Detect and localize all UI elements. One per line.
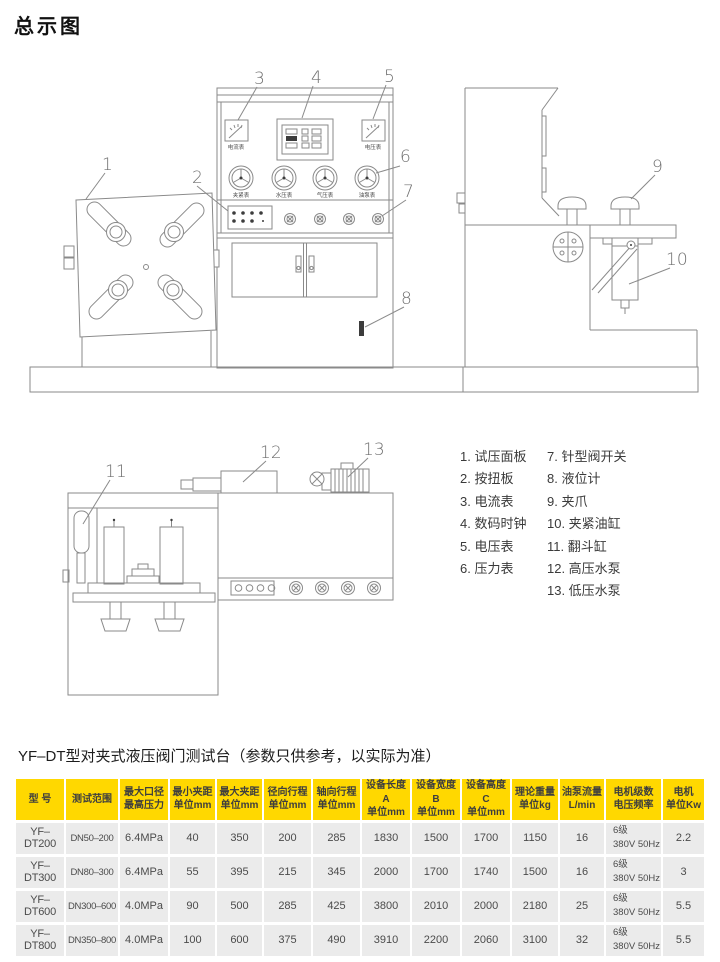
- digital-clock: [277, 119, 333, 160]
- pressure-gauges: 夹紧表 水压表 气压表 油泵表: [229, 166, 379, 199]
- spec-cell: 3: [663, 857, 704, 888]
- spec-cell: 1830: [362, 823, 410, 854]
- spec-cell: 16: [560, 823, 604, 854]
- spec-row: YF–DT800 DN350–800 4.0MPa 100 600 375 49…: [16, 925, 704, 956]
- legend-column-right: 7. 针型阀开关 8. 液位计 9. 夹爪 10. 夹紧油缸 11. 翻斗缸 1…: [547, 446, 626, 603]
- clamp-jaws: [558, 197, 639, 225]
- callout-10: 10: [666, 250, 688, 270]
- spec-cell: 6级 380V 50Hz: [606, 857, 661, 888]
- spec-cell: 1150: [512, 823, 558, 854]
- spec-cell: 2000: [462, 891, 510, 922]
- spec-cell: DN300–600: [66, 891, 118, 922]
- button-panel: [228, 206, 272, 229]
- legend-item: 13. 低压水泵: [547, 580, 626, 602]
- spec-cell: 1500: [412, 823, 460, 854]
- spec-col-header: 电机级数 电压频率: [606, 779, 661, 820]
- legend-item: 6. 压力表: [460, 558, 526, 580]
- cabinet-doors: [232, 243, 377, 297]
- spec-cell: YF–DT200: [16, 823, 64, 854]
- spec-cell: 395: [217, 857, 262, 888]
- spec-heading: YF–DT型对夹式液压阀门测试台（参数只供参考，以实际为准）: [18, 745, 441, 766]
- tipping-cylinder: [63, 511, 89, 583]
- spec-cell: 425: [313, 891, 360, 922]
- legend-item: 12. 高压水泵: [547, 558, 626, 580]
- legend-item: 4. 数码时钟: [460, 513, 526, 535]
- spec-cell: 350: [217, 823, 262, 854]
- spec-cell: 2010: [412, 891, 460, 922]
- spec-cell: 3800: [362, 891, 410, 922]
- datasheet-page: 总示图 电流表: [0, 0, 720, 962]
- spec-col-header: 最大夹距 单位mm: [217, 779, 262, 820]
- legend-item: 7. 针型阀开关: [547, 446, 626, 468]
- high-pressure-pump: [181, 471, 277, 493]
- spec-col-header: 设备宽度B 单位mm: [412, 779, 460, 820]
- legend-item: 8. 液位计: [547, 468, 626, 490]
- spec-cell: 2.2: [663, 823, 704, 854]
- callout-5: 5: [384, 67, 395, 87]
- spec-col-header: 最小夹距 单位mm: [170, 779, 215, 820]
- spec-cell: 16: [560, 857, 604, 888]
- spec-cell: 600: [217, 925, 262, 956]
- ammeter-label: 电流表: [228, 143, 245, 151]
- spec-col-header: 最大口径 最高压力: [120, 779, 168, 820]
- interior-cylinders: [73, 519, 215, 631]
- legend-column-left: 1. 试压面板 2. 按扭板 3. 电流表 4. 数码时钟 5. 电压表 6. …: [460, 446, 526, 580]
- voltmeter: 电压表: [362, 120, 385, 151]
- callout-9: 9: [652, 157, 663, 177]
- legend-item: 10. 夹紧油缸: [547, 513, 626, 535]
- spec-cell: 1740: [462, 857, 510, 888]
- spec-cell: 32: [560, 925, 604, 956]
- flange: [553, 232, 583, 262]
- voltmeter-label: 电压表: [365, 143, 382, 151]
- spec-cell: 40: [170, 823, 215, 854]
- spec-cell: DN50–200: [66, 823, 118, 854]
- spec-cell: 2060: [462, 925, 510, 956]
- spec-cell: 215: [264, 857, 311, 888]
- spec-col-header: 测试范围: [66, 779, 118, 820]
- gauge-label-air: 气压表: [317, 191, 334, 199]
- gauge-label-oil: 油泵表: [359, 191, 376, 199]
- spec-col-header: 径向行程 单位mm: [264, 779, 311, 820]
- spec-row: YF–DT300 DN80–300 6.4MPa 55 395 215 345 …: [16, 857, 704, 888]
- callout-1: 1: [102, 155, 113, 175]
- legend-item: 9. 夹爪: [547, 491, 626, 513]
- test-pressure-panel: [64, 193, 219, 367]
- spec-cell: 3100: [512, 925, 558, 956]
- spec-cell: 100: [170, 925, 215, 956]
- spec-cell: DN80–300: [66, 857, 118, 888]
- spec-cell: 5.5: [663, 891, 704, 922]
- spec-cell: 6.4MPa: [120, 823, 168, 854]
- callout-6: 6: [400, 147, 411, 167]
- spec-cell: 285: [264, 891, 311, 922]
- spec-col-header: 设备长度A 单位mm: [362, 779, 410, 820]
- spec-cell: 4.0MPa: [120, 891, 168, 922]
- callout-3: 3: [254, 69, 265, 89]
- spec-cell: 6.4MPa: [120, 857, 168, 888]
- legend-item: 2. 按扭板: [460, 468, 526, 490]
- spec-col-header: 油泵流量 L/min: [560, 779, 604, 820]
- callout-11: 11: [105, 462, 127, 482]
- spec-cell: 1700: [462, 823, 510, 854]
- spec-row: YF–DT600 DN300–600 4.0MPa 90 500 285 425…: [16, 891, 704, 922]
- spec-cell: YF–DT600: [16, 891, 64, 922]
- low-pressure-pump: [310, 463, 369, 492]
- spec-cell: 345: [313, 857, 360, 888]
- gauge-label-clamp: 夹紧表: [233, 191, 250, 199]
- spec-col-header: 理论重量 单位kg: [512, 779, 558, 820]
- spec-cell: 4.0MPa: [120, 925, 168, 956]
- ammeter: 电流表: [225, 120, 248, 151]
- spec-col-header: 设备高度C 单位mm: [462, 779, 510, 820]
- callout-13: 13: [363, 440, 385, 460]
- legend-item: 11. 翻斗缸: [547, 536, 626, 558]
- spec-cell: 3910: [362, 925, 410, 956]
- spec-cell: 5.5: [663, 925, 704, 956]
- needle-valves: [285, 214, 384, 225]
- spec-cell: 1700: [412, 857, 460, 888]
- spec-cell: 6级 380V 50Hz: [606, 823, 661, 854]
- spec-cell: 2200: [412, 925, 460, 956]
- spec-cell: DN350–800: [66, 925, 118, 956]
- spec-cell: 500: [217, 891, 262, 922]
- spec-cell: 2180: [512, 891, 558, 922]
- valve-knobs: [290, 582, 381, 595]
- spec-cell: 285: [313, 823, 360, 854]
- spec-cell: 1500: [512, 857, 558, 888]
- gauge-label-water: 水压表: [276, 191, 293, 199]
- pump-view: 11 12 13: [63, 440, 393, 695]
- spec-table: 型 号 测试范围 最大口径 最高压力 最小夹距 单位mm 最大夹距 单位mm 径…: [14, 776, 706, 959]
- callout-12: 12: [260, 443, 282, 463]
- spec-header-row: 型 号 测试范围 最大口径 最高压力 最小夹距 单位mm 最大夹距 单位mm 径…: [16, 779, 704, 820]
- spec-cell: 375: [264, 925, 311, 956]
- spec-col-header: 轴向行程 单位mm: [313, 779, 360, 820]
- level-gauge: [359, 321, 364, 336]
- spec-cell: YF–DT800: [16, 925, 64, 956]
- legend-item: 3. 电流表: [460, 491, 526, 513]
- spec-cell: 200: [264, 823, 311, 854]
- side-view: 9 10: [457, 88, 698, 392]
- spec-col-header: 型 号: [16, 779, 64, 820]
- spec-col-header: 电机 单位Kw: [663, 779, 704, 820]
- front-view: 电流表: [30, 67, 463, 392]
- callout-7: 7: [403, 182, 414, 202]
- spec-row: YF–DT200 DN50–200 6.4MPa 40 350 200 285 …: [16, 823, 704, 854]
- spec-cell: 25: [560, 891, 604, 922]
- callout-8: 8: [401, 289, 412, 309]
- callout-4: 4: [311, 68, 322, 88]
- spec-cell: YF–DT300: [16, 857, 64, 888]
- clamping-cylinder: [592, 238, 638, 314]
- spec-cell: 6级 380V 50Hz: [606, 891, 661, 922]
- spec-cell: 90: [170, 891, 215, 922]
- spec-cell: 490: [313, 925, 360, 956]
- legend-item: 5. 电压表: [460, 536, 526, 558]
- callout-2: 2: [192, 168, 203, 188]
- legend-item: 1. 试压面板: [460, 446, 526, 468]
- spec-cell: 6级 380V 50Hz: [606, 925, 661, 956]
- spec-cell: 2000: [362, 857, 410, 888]
- spec-cell: 55: [170, 857, 215, 888]
